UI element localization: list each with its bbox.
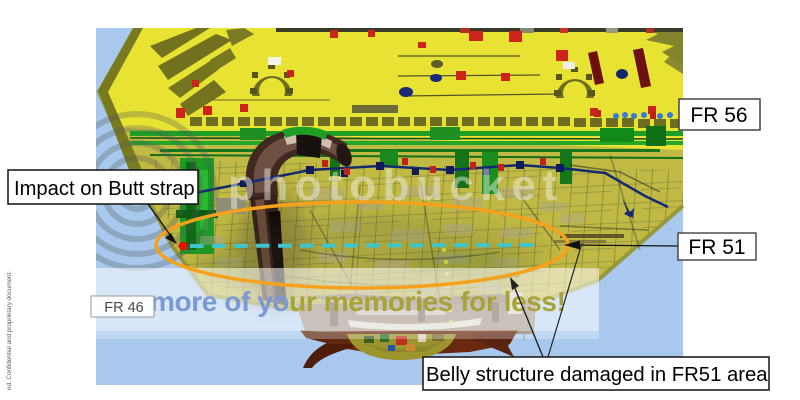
svg-text:ed. Confidential and proprieta: ed. Confidential and proprietary documen… [6, 271, 13, 390]
svg-text:FR 46: FR 46 [104, 300, 144, 316]
svg-text:Belly structure damaged in FR5: Belly structure damaged in FR51 area [426, 364, 768, 386]
svg-text:Impact on Butt strap: Impact on Butt strap [14, 178, 195, 200]
svg-text:FR 51: FR 51 [688, 236, 745, 259]
svg-text:FR 56: FR 56 [690, 104, 747, 127]
svg-text:more of your memories for less: more of your memories for less! [150, 286, 566, 317]
